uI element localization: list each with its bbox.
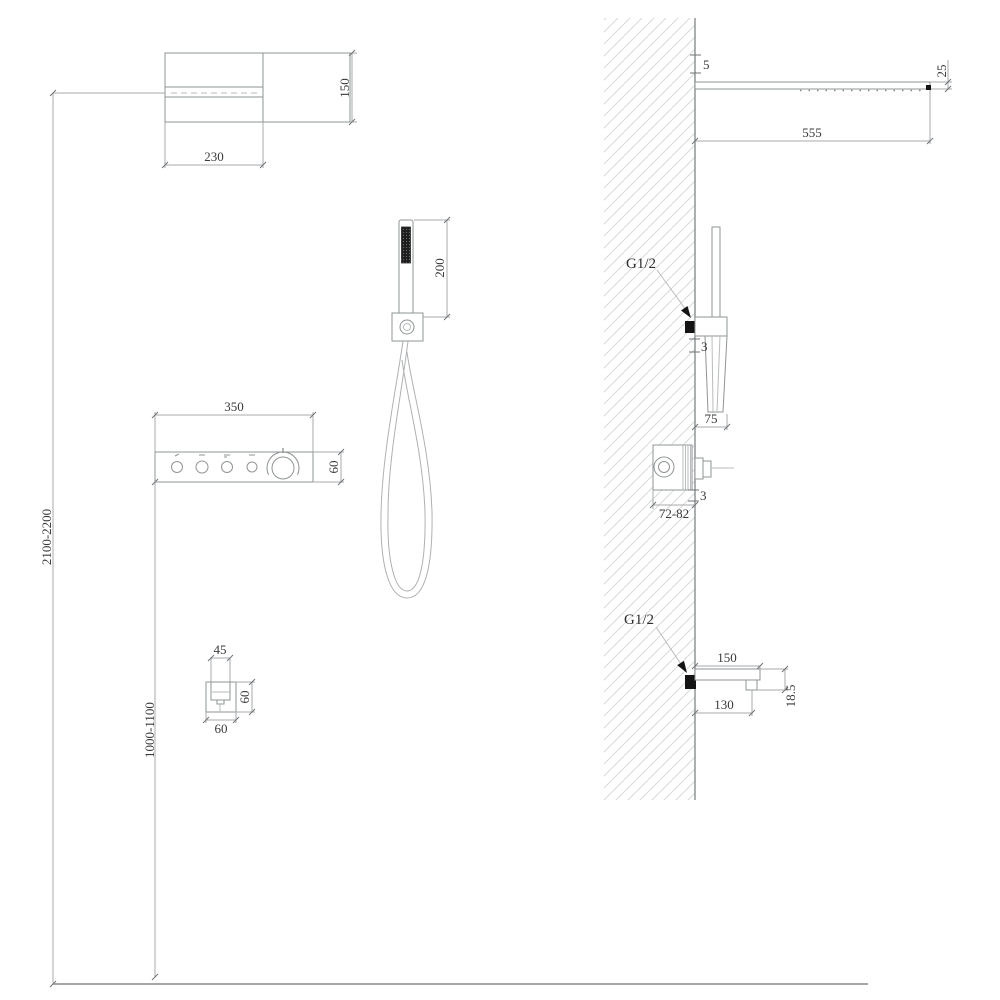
shower-hose-inner [388, 341, 425, 591]
svg-text:350: 350 [224, 399, 244, 414]
function-knob-3 [222, 462, 233, 473]
function-knob-2 [196, 461, 208, 473]
dim-spout-plate-height: 60 [236, 679, 255, 715]
handshower-wand-side [705, 336, 727, 412]
spout-front: 45 60 60 [203, 642, 255, 736]
svg-text:130: 130 [714, 697, 734, 712]
spray-face [402, 227, 411, 263]
svg-text:25: 25 [934, 65, 949, 78]
wall-hatch [604, 18, 695, 800]
svg-text:45: 45 [214, 642, 227, 657]
function-knob-1 [172, 462, 183, 473]
svg-text:150: 150 [337, 78, 352, 98]
dim-install-height: 2100-2200 [39, 509, 54, 565]
wall-section [604, 18, 695, 800]
shower-hose-outer [381, 341, 432, 598]
spout-bar-side [695, 669, 760, 680]
hand-shower-front: 200 [381, 217, 450, 598]
dim-panel-height-from-floor: 1000-1100 [142, 702, 157, 758]
shower-installation-drawing: 150 230 2100-2200 1000-1100 [0, 0, 1000, 1000]
handshower-handle-side [712, 227, 720, 317]
waterfall-slot [165, 87, 263, 97]
svg-text:72-82: 72-82 [659, 506, 689, 521]
head-plate-side [695, 82, 930, 89]
wall-bracket [392, 313, 423, 341]
valve-trim-side [695, 458, 703, 479]
dim-panel-height: 60 [313, 449, 344, 485]
g12-outlet-handshower [685, 321, 696, 333]
spout-outlet-side [746, 680, 757, 690]
mixer-panel-front: 350 60 [152, 399, 344, 485]
label-spout-inlet: G1/2 [624, 612, 654, 628]
svg-text:200: 200 [432, 258, 447, 278]
dim-head-width: 230 [162, 122, 266, 168]
dim-spout-length: 150 [692, 650, 763, 669]
label-handshower-inlet: G1/2 [626, 256, 656, 272]
svg-text:555: 555 [802, 125, 822, 140]
svg-text:230: 230 [204, 149, 224, 164]
mode-icon-1 [175, 454, 179, 456]
valve-knob-side [703, 461, 711, 477]
shower-head-side: 5 555 25 [690, 55, 952, 144]
dim-spout-plate-width: 60 [203, 712, 239, 736]
spout-outlet-front [217, 700, 224, 704]
dim-head-height: 150 [337, 50, 357, 125]
svg-text:60: 60 [237, 691, 252, 704]
svg-text:18.5: 18.5 [783, 685, 798, 708]
holder-bracket-side [695, 317, 727, 336]
svg-text:150: 150 [717, 650, 737, 665]
plate-end-marker [926, 85, 931, 90]
mode-icon-3 [224, 455, 230, 457]
temperature-scale-arc [267, 452, 299, 475]
spout-body-front [211, 682, 230, 700]
dim-handshower-length: 200 [414, 217, 450, 320]
drawing-canvas: 150 230 2100-2200 1000-1100 [0, 0, 1000, 1000]
svg-text:3: 3 [700, 488, 707, 503]
svg-text:60: 60 [215, 721, 228, 736]
shower-head-front: 150 230 [162, 50, 357, 168]
dim-panel-width: 350 [152, 399, 316, 452]
dim-handshower-depth: 75 [692, 411, 730, 430]
overall-height-dims: 2100-2200 1000-1100 [39, 90, 868, 987]
function-knob-4 [247, 462, 257, 472]
g12-outlet-spout [685, 675, 696, 689]
svg-text:3: 3 [701, 339, 708, 354]
svg-text:75: 75 [705, 411, 718, 426]
dim-spout-width: 45 [208, 642, 233, 661]
svg-text:5: 5 [703, 57, 710, 72]
dim-spout-outlet-offset: 130 [692, 690, 755, 716]
temperature-knob [272, 457, 294, 479]
svg-text:60: 60 [326, 461, 341, 474]
dim-head-thickness: 25 [930, 60, 952, 92]
dim-spout-drop: 18.5 [757, 666, 798, 707]
dim-head-length: 555 [692, 90, 933, 144]
